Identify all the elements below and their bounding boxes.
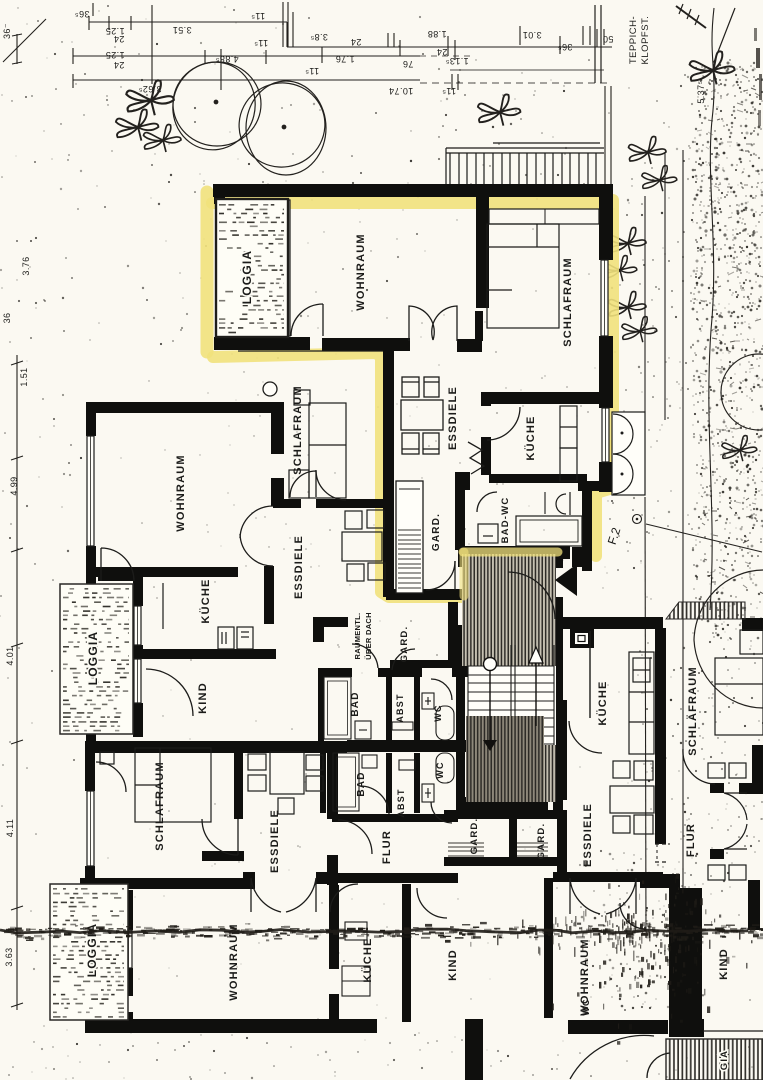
svg-text:4.01: 4.01 [5, 646, 15, 665]
svg-text:11⁵: 11⁵ [251, 11, 265, 21]
svg-text:GARD.: GARD. [469, 818, 480, 855]
svg-text:SCHLAFRAUM: SCHLAFRAUM [562, 257, 574, 347]
svg-text:SCHLAFRAUM: SCHLAFRAUM [154, 761, 166, 851]
svg-text:ESSDIELE: ESSDIELE [582, 803, 594, 867]
svg-text:WC: WC [433, 704, 443, 721]
svg-text:36⁻: 36⁻ [2, 23, 12, 39]
svg-text:1.88: 1.88 [427, 29, 446, 39]
svg-text:LOGGIA: LOGGIA [86, 631, 100, 686]
svg-text:KIND: KIND [197, 682, 209, 714]
svg-text:KIND: KIND [447, 949, 459, 981]
svg-text:ESSDIELE: ESSDIELE [447, 386, 459, 450]
svg-text:ÜBER DACH: ÜBER DACH [364, 612, 373, 660]
svg-text:4.99: 4.99 [9, 476, 19, 495]
svg-text:WC: WC [435, 761, 445, 778]
svg-text:3.01: 3.01 [522, 30, 541, 40]
svg-text:WOHNRAUM: WOHNRAUM [355, 233, 367, 310]
svg-text:GARD.: GARD. [536, 823, 547, 860]
svg-text:KLOPFST.: KLOPFST. [640, 16, 651, 65]
svg-text:3.51: 3.51 [172, 25, 191, 35]
svg-text:24: 24 [114, 60, 125, 70]
svg-text:ESSDIELE: ESSDIELE [269, 809, 281, 873]
svg-text:1.51: 1.51 [19, 367, 29, 386]
svg-text:36⁵: 36⁵ [75, 9, 90, 19]
svg-text:5.37⁵: 5.37⁵ [696, 80, 706, 103]
svg-text:11⁵: 11⁵ [442, 86, 456, 96]
svg-text:1.25: 1.25 [105, 50, 124, 60]
svg-text:RAUMENTL.: RAUMENTL. [353, 613, 362, 660]
svg-text:FLUR: FLUR [685, 823, 697, 857]
svg-text:1.13⁵: 1.13⁵ [445, 56, 468, 66]
svg-text:WOHNRAUM: WOHNRAUM [175, 454, 187, 531]
svg-text:GIA: GIA [719, 1050, 730, 1071]
svg-text:KIND: KIND [718, 948, 730, 980]
svg-text:FLUR: FLUR [381, 830, 393, 864]
svg-text:24: 24 [351, 37, 362, 47]
svg-text:ABST: ABST [396, 788, 406, 817]
svg-text:11⁵: 11⁵ [305, 66, 319, 76]
svg-text:KÜCHE: KÜCHE [596, 680, 609, 725]
svg-text:ESSDIELE: ESSDIELE [293, 535, 305, 599]
svg-text:KÜCHE: KÜCHE [199, 578, 212, 623]
svg-text:24: 24 [114, 34, 125, 44]
svg-text:ABST: ABST [395, 693, 405, 722]
svg-text:TEPPICH-: TEPPICH- [628, 16, 639, 64]
svg-text:3.76: 3.76 [21, 256, 31, 275]
svg-text:4.11: 4.11 [5, 819, 15, 837]
svg-text:11⁵: 11⁵ [254, 38, 268, 48]
svg-text:GARD.: GARD. [399, 626, 410, 663]
svg-text:KÜCHE: KÜCHE [361, 937, 374, 982]
svg-text:SCHLAFRAUM: SCHLAFRAUM [292, 385, 304, 475]
svg-text:BAD: BAD [350, 691, 361, 716]
svg-text:SCHLÄFRAUM: SCHLÄFRAUM [686, 666, 699, 756]
svg-text:BAD: BAD [356, 771, 367, 796]
svg-text:10.74: 10.74 [389, 86, 414, 96]
svg-text:76: 76 [403, 59, 414, 69]
svg-text:24: 24 [437, 47, 448, 57]
svg-text:BAD-WC: BAD-WC [500, 497, 511, 544]
svg-text:WC: WC [581, 998, 591, 1015]
svg-text:1.76: 1.76 [335, 54, 354, 64]
svg-text:36: 36 [2, 313, 12, 324]
svg-text:LOGGIA: LOGGIA [240, 250, 254, 305]
svg-text:GARD.: GARD. [431, 513, 442, 551]
svg-text:3.63: 3.63 [4, 947, 14, 966]
svg-text:KÜCHE: KÜCHE [524, 415, 537, 460]
svg-text:50: 50 [603, 34, 614, 44]
svg-text:3.8⁵: 3.8⁵ [310, 32, 328, 42]
svg-text:36⁵: 36⁵ [558, 42, 573, 52]
